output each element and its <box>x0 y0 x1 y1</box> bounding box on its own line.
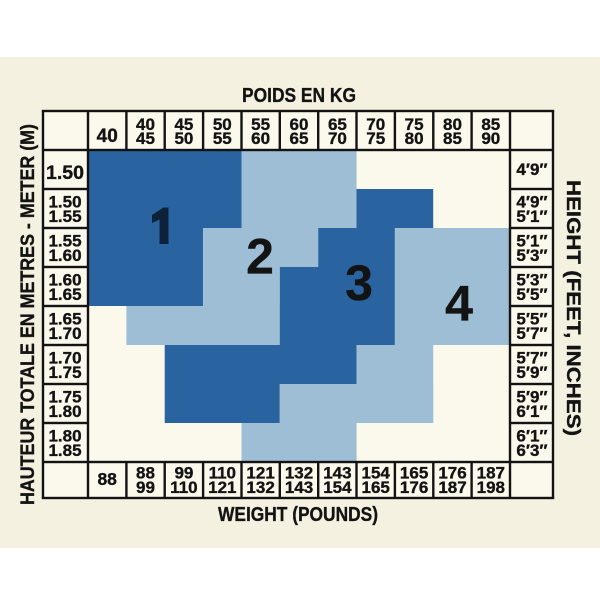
svg-text:90: 90 <box>481 129 500 148</box>
svg-text:45: 45 <box>136 129 155 148</box>
svg-text:3: 3 <box>345 255 373 311</box>
svg-text:1.80: 1.80 <box>48 402 81 421</box>
svg-text:80: 80 <box>405 129 424 148</box>
svg-text:165: 165 <box>362 478 390 497</box>
svg-text:143: 143 <box>285 478 313 497</box>
svg-text:1.60: 1.60 <box>48 246 81 265</box>
svg-text:1.55: 1.55 <box>48 207 81 226</box>
svg-text:121: 121 <box>208 478 236 497</box>
svg-text:40: 40 <box>97 126 118 147</box>
svg-text:4′9″: 4′9″ <box>516 160 547 179</box>
svg-text:132: 132 <box>246 478 274 497</box>
svg-text:1.70: 1.70 <box>48 324 81 343</box>
svg-text:88: 88 <box>97 469 117 489</box>
svg-text:5′7″: 5′7″ <box>516 324 547 343</box>
svg-text:1.75: 1.75 <box>48 363 81 382</box>
svg-text:5′9″: 5′9″ <box>516 363 547 382</box>
svg-text:110: 110 <box>170 478 197 497</box>
svg-text:1.50: 1.50 <box>46 162 84 184</box>
svg-text:6′1″: 6′1″ <box>516 402 547 421</box>
svg-text:5′3″: 5′3″ <box>516 246 547 265</box>
svg-text:1.65: 1.65 <box>48 285 81 304</box>
svg-text:1.85: 1.85 <box>48 441 81 460</box>
svg-text:70: 70 <box>328 129 347 148</box>
svg-text:5′5″: 5′5″ <box>516 285 547 304</box>
svg-text:HEIGHT (FEET, INCHES): HEIGHT (FEET, INCHES) <box>562 180 583 436</box>
svg-text:187: 187 <box>438 478 466 497</box>
svg-text:154: 154 <box>323 478 352 497</box>
svg-text:WEIGHT (POUNDS): WEIGHT (POUNDS) <box>218 504 378 526</box>
svg-text:50: 50 <box>174 129 193 148</box>
svg-text:4: 4 <box>445 276 473 332</box>
svg-text:2: 2 <box>246 229 274 285</box>
svg-text:POIDS EN KG: POIDS EN KG <box>242 85 356 107</box>
svg-text:65: 65 <box>290 129 309 148</box>
svg-text:85: 85 <box>443 129 462 148</box>
svg-text:5′1″: 5′1″ <box>516 207 547 226</box>
svg-text:6′3″: 6′3″ <box>516 441 547 460</box>
svg-text:99: 99 <box>136 478 155 497</box>
svg-text:75: 75 <box>366 129 385 148</box>
svg-text:55: 55 <box>213 129 232 148</box>
svg-text:176: 176 <box>400 478 428 497</box>
svg-text:HAUTEUR TOTALE EN METRES - MET: HAUTEUR TOTALE EN METRES - METER (M) <box>17 124 39 505</box>
svg-text:60: 60 <box>251 129 270 148</box>
svg-text:198: 198 <box>477 478 505 497</box>
